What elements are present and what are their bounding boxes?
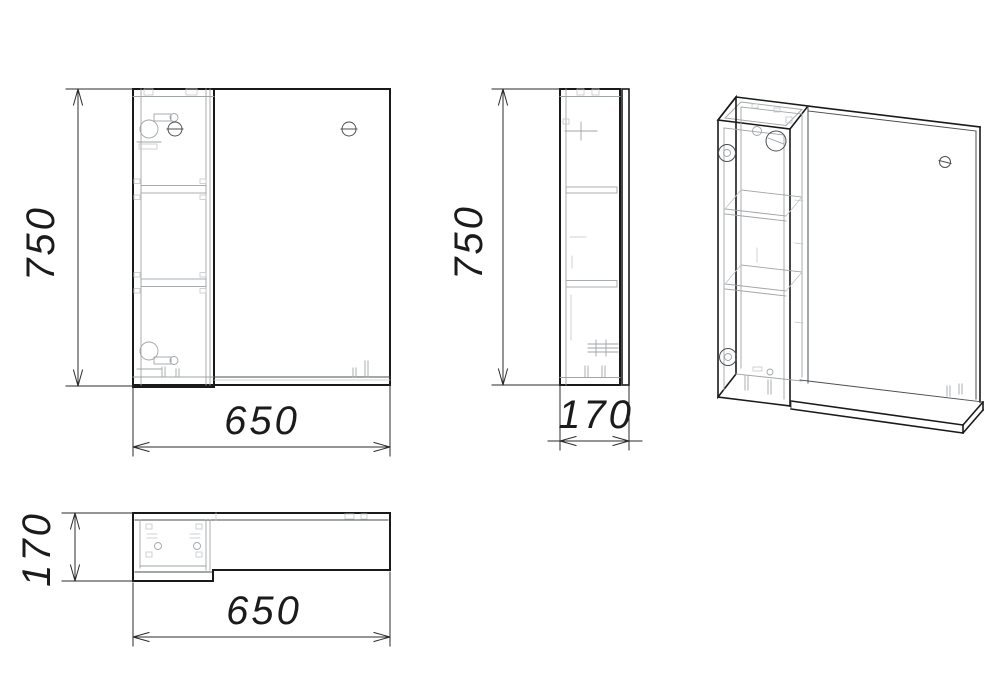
screw-hole-door	[341, 122, 357, 136]
dimension-label-plan-width: 650	[226, 589, 302, 633]
dimension-plan-depth: 170	[15, 511, 133, 587]
hinge-bottom-symbol	[137, 342, 178, 369]
side-view	[560, 89, 629, 385]
dimension-label-front-width: 650	[224, 399, 300, 443]
front-view	[133, 89, 390, 387]
iso-screw-hole	[939, 157, 951, 168]
plan-door-strip	[133, 570, 213, 581]
hinge-top-symbol	[137, 114, 178, 150]
dimension-label-side-height: 750	[447, 204, 491, 280]
dimension-label-side-depth: 170	[558, 393, 634, 437]
technical-drawing-canvas: 750 650	[0, 0, 1000, 683]
iso-hinge-bottom-symbol	[720, 349, 737, 366]
front-shelf-2	[134, 273, 206, 294]
front-shelf-1	[134, 179, 206, 200]
plan-view	[133, 513, 390, 581]
dimension-plan-width: 650	[133, 572, 390, 646]
iso-mirror-panel	[808, 106, 980, 402]
iso-hinge-top-symbol	[719, 145, 736, 162]
dimension-label-front-height: 750	[19, 205, 63, 281]
dimension-side-depth: 170	[548, 385, 642, 450]
iso-bottom-shelf	[791, 380, 983, 433]
dimension-label-plan-depth: 170	[15, 511, 59, 587]
dimension-side-height: 750	[447, 89, 560, 385]
iso-column	[718, 97, 808, 406]
dimension-front-height: 750	[19, 89, 133, 386]
dimension-front-width: 650	[133, 385, 390, 456]
screw-hole-column	[167, 122, 183, 136]
isometric-view	[718, 97, 983, 433]
